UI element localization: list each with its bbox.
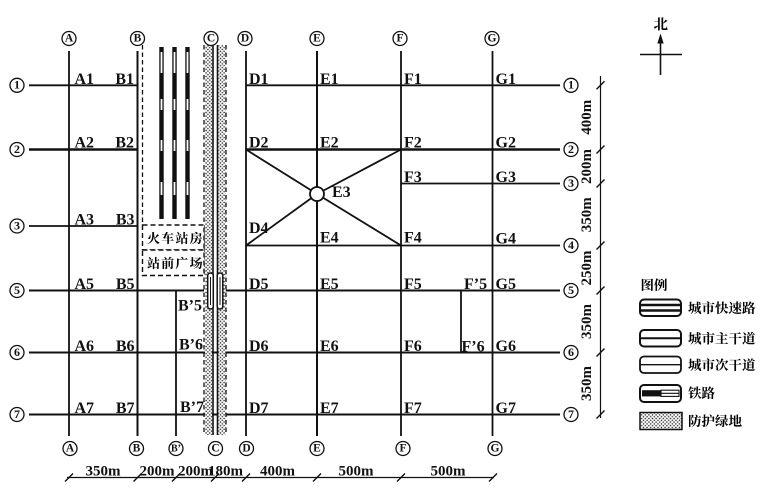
svg-text:F4: F4 [404,230,422,247]
svg-text:180m: 180m [208,464,244,480]
svg-text:D1: D1 [249,71,269,88]
svg-text:250m: 250m [579,250,595,286]
svg-text:F: F [399,443,406,455]
svg-text:E5: E5 [320,276,339,293]
svg-text:7: 7 [14,407,20,421]
svg-text:F’5: F’5 [464,276,487,293]
svg-text:B5: B5 [116,276,135,293]
svg-text:350m: 350m [579,197,595,233]
svg-text:6: 6 [568,345,574,359]
svg-text:F1: F1 [404,71,422,88]
svg-text:400m: 400m [579,99,595,135]
svg-text:G3: G3 [496,169,516,186]
svg-text:E1: E1 [320,71,339,88]
svg-text:B: B [133,443,141,455]
svg-text:200m: 200m [579,149,595,185]
svg-text:350m: 350m [579,304,595,340]
svg-text:D2: D2 [249,135,269,152]
svg-text:400m: 400m [260,464,296,480]
svg-text:500m: 500m [431,464,467,480]
svg-text:500m: 500m [339,464,375,480]
svg-text:F3: F3 [404,169,422,186]
svg-text:350m: 350m [579,366,595,402]
svg-text:B6: B6 [116,338,135,355]
svg-text:200m: 200m [140,464,176,480]
svg-text:F5: F5 [404,276,422,293]
svg-text:A2: A2 [75,135,95,152]
svg-text:B7: B7 [116,400,135,417]
svg-text:F2: F2 [404,135,422,152]
svg-text:E2: E2 [320,135,339,152]
svg-text:E7: E7 [320,400,339,417]
svg-text:E: E [313,443,321,455]
svg-text:1: 1 [14,78,20,92]
svg-text:B’: B’ [171,443,181,454]
svg-text:3: 3 [14,218,20,232]
svg-text:A6: A6 [75,338,95,355]
svg-text:D: D [242,443,250,455]
svg-text:D4: D4 [249,220,269,237]
svg-text:2: 2 [14,142,20,156]
svg-text:B’5: B’5 [178,298,202,315]
svg-text:G1: G1 [496,71,516,88]
svg-text:F7: F7 [404,400,422,417]
svg-text:E3: E3 [332,184,351,201]
svg-text:350m: 350m [86,464,122,480]
svg-text:G4: G4 [496,231,516,248]
svg-text:D6: D6 [249,338,269,355]
svg-text:G: G [488,33,497,45]
svg-text:4: 4 [568,238,574,252]
svg-text:A3: A3 [75,212,95,229]
svg-text:2: 2 [568,142,574,156]
svg-text:F’6: F’6 [462,339,485,356]
svg-text:A: A [66,443,75,455]
svg-text:3: 3 [568,176,574,190]
svg-text:A5: A5 [75,276,95,293]
svg-text:5: 5 [568,283,574,297]
svg-text:A: A [65,33,74,45]
svg-text:E4: E4 [320,230,339,247]
svg-text:B’6: B’6 [179,337,203,354]
svg-text:D: D [241,33,249,45]
svg-text:E6: E6 [320,338,339,355]
svg-text:B’7: B’7 [180,399,204,416]
svg-text:6: 6 [14,345,20,359]
svg-text:E: E [313,33,321,45]
svg-text:5: 5 [14,283,20,297]
svg-text:D7: D7 [249,400,269,417]
svg-text:B: B [134,33,142,45]
svg-text:C: C [211,443,219,455]
svg-text:G6: G6 [496,338,516,355]
svg-text:G: G [491,443,500,455]
svg-text:A7: A7 [75,400,95,417]
svg-text:F6: F6 [404,338,422,355]
svg-text:C: C [207,33,215,45]
svg-text:F: F [396,33,403,45]
svg-text:G7: G7 [496,400,516,417]
svg-text:7: 7 [568,407,574,421]
svg-text:1: 1 [568,78,574,92]
svg-text:B1: B1 [115,71,134,88]
svg-text:D5: D5 [249,276,269,293]
svg-text:A1: A1 [75,71,95,88]
svg-text:G2: G2 [496,135,516,152]
svg-text:G5: G5 [496,276,516,293]
svg-text:B3: B3 [116,212,135,229]
svg-text:B2: B2 [115,135,134,152]
